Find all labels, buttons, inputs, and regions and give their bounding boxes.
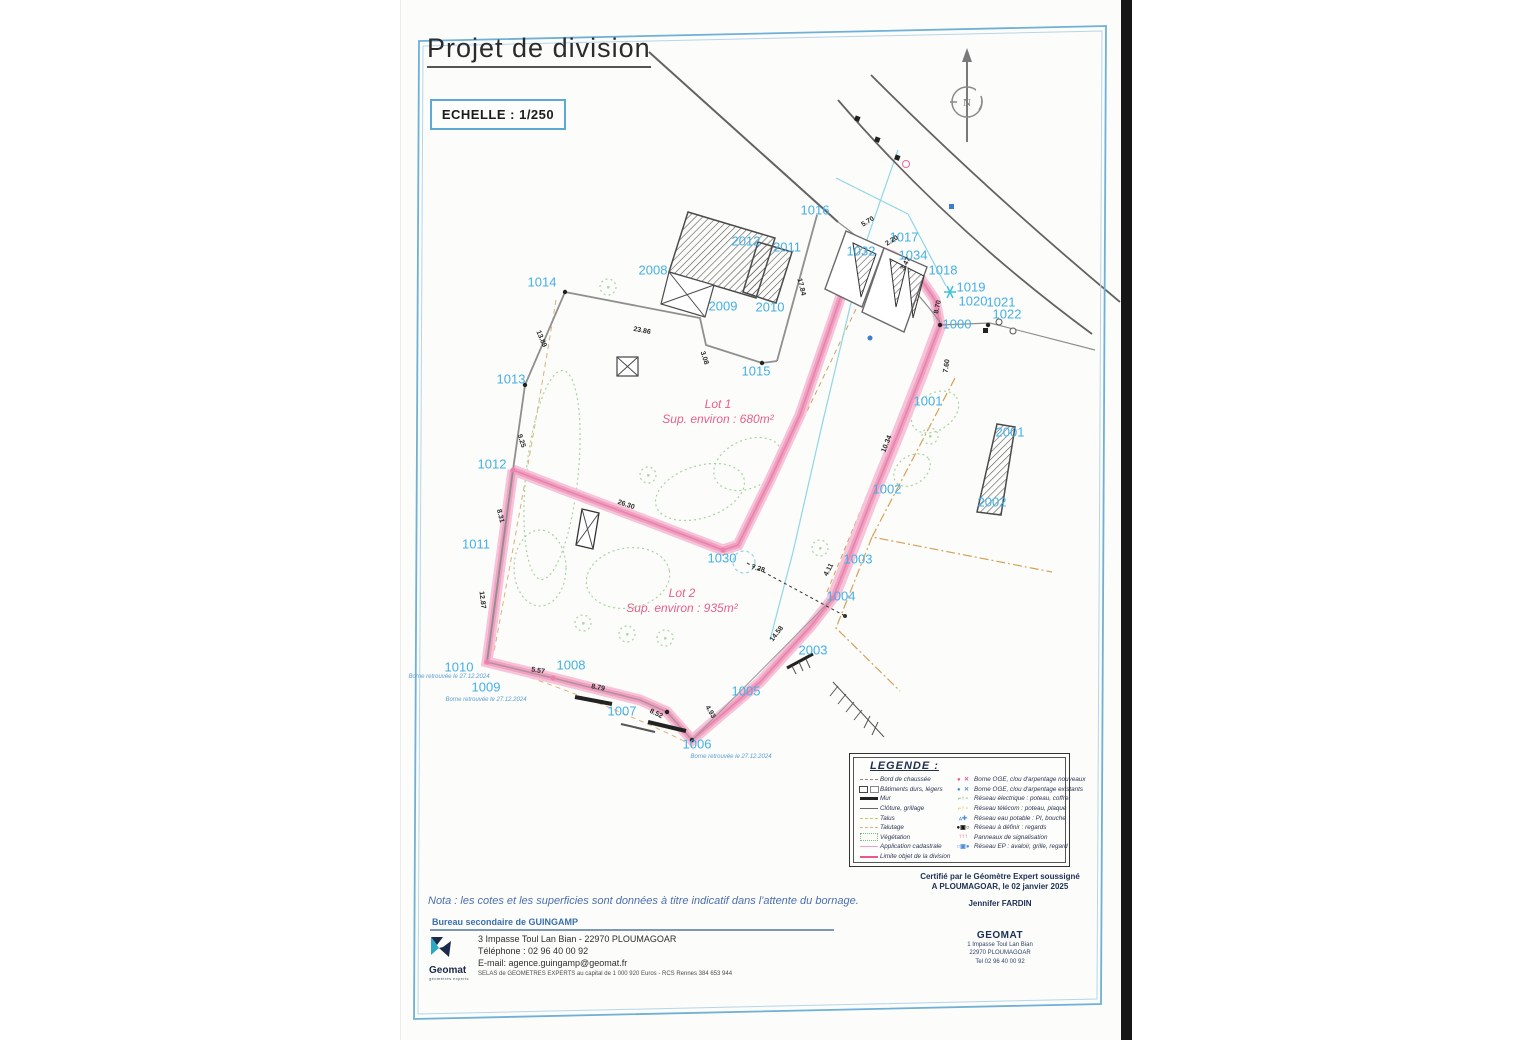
legend-column-right: ● ✕Borne OGE, clou d'arpentage nouveaux●… — [952, 775, 1064, 861]
agency-phone: Téléphone : 02 96 40 00 92 — [478, 945, 676, 957]
parcel-label-1006: 1006 — [683, 737, 712, 752]
measurement-label: 7.28 — [750, 564, 765, 575]
scanned-division-plan: N 10001001100210031004100510061007100810… — [0, 0, 1520, 1040]
parcel-label-1013: 1013 — [497, 372, 526, 387]
division-icon — [858, 856, 880, 858]
legend-item-label: Borne OGE, clou d'arpentage nouveaux — [974, 776, 1085, 783]
measurement-label: 4.93 — [704, 704, 717, 719]
legend-item: ○▣●Réseau EP : avaloir, grille, regard — [952, 842, 1064, 852]
ep-icon: ○▣● — [952, 843, 974, 850]
parcel-label-1001: 1001 — [914, 394, 943, 409]
legend-item-label: Panneaux de signalisation — [974, 834, 1048, 841]
parcel-label-2008: 2008 — [639, 263, 668, 278]
telecom-icon: ⌐↑ ▫ — [952, 806, 974, 812]
parcel-label-1009: 1009 — [472, 680, 501, 695]
certification-block: Certifié par le Géomètre Expert soussign… — [905, 872, 1095, 966]
legend-item: ↑↑↑Panneaux de signalisation — [952, 833, 1064, 843]
scan-edge-strip — [1121, 0, 1132, 1040]
eau-icon: ▵✚ — [952, 815, 974, 822]
legend-item: ●▣○Réseau à définir : regards — [952, 823, 1064, 833]
legend-item: Talus — [858, 813, 952, 823]
parcel-label-1032: 1032 — [847, 244, 876, 259]
nota-text: Nota : les cotes et les superficies sont… — [428, 895, 859, 907]
talutage-icon — [858, 827, 880, 828]
measurement-label: 8.31 — [495, 509, 505, 524]
cert-addr1: 1 Impasse Toul Lan Bian — [905, 941, 1095, 949]
measurement-label: 10.34 — [880, 435, 893, 454]
geomat-logo-icon — [429, 935, 459, 959]
legend-title: LEGENDE : — [870, 760, 1069, 772]
elec-icon: ⌐↑ ▫ — [952, 796, 974, 802]
geomat-logo-sub: géomètres experts — [429, 976, 473, 981]
parcel-label-1012: 1012 — [478, 457, 507, 472]
borne-note: Borne retrouvée le 27.12.2024 — [408, 674, 489, 680]
legend-item-label: Talutage — [880, 824, 904, 831]
legend-column-left: Bord de chausséeBâtiments durs, légersMu… — [858, 775, 952, 861]
scale-label: ECHELLE : 1/250 — [442, 107, 554, 122]
legend-item: Végétation — [858, 833, 952, 843]
borne-note: Borne retrouvée le 27.12.2024 — [690, 754, 771, 760]
parcel-label-2002: 2002 — [978, 495, 1007, 510]
parcel-label-2003: 2003 — [799, 643, 828, 658]
cert-addr3: Tel 02 96 40 00 92 — [905, 958, 1095, 966]
parcel-label-1011: 1011 — [462, 537, 490, 552]
legend-item-label: Limite objet de la division — [880, 853, 950, 860]
cert-company: GEOMAT — [905, 930, 1095, 941]
borne-old-icon: ● ✕ — [952, 786, 974, 793]
measurement-label: 4.11 — [823, 563, 835, 578]
legend-item: ⌐↑ ▫Réseau télécom : poteau, plaque — [952, 804, 1064, 814]
page-title: Projet de division — [427, 33, 651, 68]
legend-box: LEGENDE : Bord de chausséeBâtiments durs… — [849, 753, 1070, 867]
parcel-label-1022: 1022 — [993, 307, 1022, 322]
lot-label: Lot 1Sup. environ : 680m² — [662, 397, 773, 427]
cert-line2: A PLOUMAGOAR, le 02 janvier 2025 — [905, 882, 1095, 892]
borne-note: Borne retrouvée le 27.12.2024 — [445, 697, 526, 703]
scale-box: ECHELLE : 1/250 — [430, 99, 566, 130]
measurement-label: 12.87 — [477, 591, 486, 609]
legend-item-label: Végétation — [880, 834, 910, 841]
parcel-label-1008: 1008 — [557, 658, 586, 673]
measurement-label: 17.84 — [795, 278, 806, 297]
legend-item: ⌐↑ ▫Réseau électrique : poteau, coffret — [952, 794, 1064, 804]
parcel-label-2010: 2010 — [756, 300, 785, 315]
legend-item-label: Borne OGE, clou d'arpentage existants — [974, 786, 1083, 793]
legend-item-label: Mur — [880, 795, 891, 802]
plan-labels-layer: 1000100110021003100410051006100710081009… — [0, 0, 1520, 1040]
measurement-label: 8.70 — [933, 300, 943, 315]
legal-line: SELAS de GEOMETRES EXPERTS au capital de… — [478, 971, 732, 977]
parcel-label-2009: 2009 — [709, 299, 738, 314]
buildings-icon — [858, 786, 880, 793]
measurement-label: 8.52 — [648, 708, 663, 720]
legend-item: Bord de chaussée — [858, 775, 952, 785]
measurement-label: 13.89 — [534, 330, 547, 349]
legend-item: Talutage — [858, 823, 952, 833]
measurement-label: 2.20 — [884, 234, 899, 247]
geomat-logo-name: Geomat — [429, 965, 473, 976]
measurement-label: 9.25 — [516, 433, 527, 448]
legend-item: ● ✕Borne OGE, clou d'arpentage nouveaux — [952, 775, 1064, 785]
measurement-label: 8.79 — [591, 683, 606, 692]
legend-item-label: Talus — [880, 815, 895, 822]
legend-item: Mur — [858, 794, 952, 804]
cert-signer: Jennifer FARDIN — [905, 899, 1095, 908]
legend-item-label: Réseau télécom : poteau, plaque — [974, 805, 1066, 812]
parcel-label-2012: 2012 — [732, 234, 761, 249]
measurement-label: 5.57 — [531, 666, 546, 675]
legend-item-label: Réseau à définir : regards — [974, 824, 1046, 831]
measurement-label: 5.70 — [860, 215, 875, 228]
road-edge-icon — [858, 779, 880, 780]
legend-item: Limite objet de la division — [858, 852, 952, 862]
parcel-label-1018: 1018 — [929, 263, 958, 278]
measurement-label: 3.08 — [699, 350, 710, 365]
parcel-label-1000: 1000 — [943, 317, 972, 332]
cert-line1: Certifié par le Géomètre Expert soussign… — [905, 872, 1095, 882]
talus-icon — [858, 818, 880, 819]
parcel-label-1005: 1005 — [732, 684, 761, 699]
parcel-label-1015: 1015 — [742, 364, 771, 379]
agency-address: 3 Impasse Toul Lan Bian - 22970 PLOUMAGO… — [478, 933, 676, 969]
parcel-label-1002: 1002 — [873, 482, 902, 497]
agency-email: E-mail: agence.guingamp@geomat.fr — [478, 957, 676, 969]
bureau-underline — [430, 929, 834, 931]
cadastral-icon — [858, 846, 880, 847]
measurement-label: 14.58 — [769, 625, 785, 643]
wall-icon — [858, 797, 880, 800]
parcel-label-1004: 1004 — [827, 589, 856, 604]
legend-item: Clôture, grillage — [858, 804, 952, 814]
parcel-label-1016: 1016 — [801, 203, 830, 218]
parcel-label-2001: 2001 — [996, 425, 1025, 440]
panneaux-icon: ↑↑↑ — [952, 834, 974, 840]
legend-item: Application cadastrale — [858, 842, 952, 852]
legend-item-label: Réseau eau potable : PI, bouche — [974, 815, 1066, 822]
bureau-label: Bureau secondaire de GUINGAMP — [432, 917, 578, 927]
parcel-label-1019: 1019 — [957, 280, 986, 295]
agency-street: 3 Impasse Toul Lan Bian - 22970 PLOUMAGO… — [478, 933, 676, 945]
parcel-label-2011: 2011 — [773, 240, 801, 255]
regards-icon: ●▣○ — [952, 824, 974, 831]
legend-item-label: Bord de chaussée — [880, 776, 931, 783]
cert-addr2: 22970 PLOUMAGOAR — [905, 949, 1095, 957]
legend-item: Bâtiments durs, légers — [858, 785, 952, 795]
parcel-label-1020: 1020 — [959, 294, 988, 309]
parcel-label-1010: 1010 — [445, 660, 474, 675]
parcel-label-1030: 1030 — [708, 551, 737, 566]
measurement-label: 23.86 — [633, 326, 652, 336]
legend-item-label: Application cadastrale — [880, 843, 942, 850]
legend-item-label: Bâtiments durs, légers — [880, 786, 943, 793]
fence-icon — [858, 808, 880, 809]
legend-item: ● ✕Borne OGE, clou d'arpentage existants — [952, 785, 1064, 795]
parcel-label-1014: 1014 — [528, 275, 557, 290]
borne-new-icon: ● ✕ — [952, 776, 974, 783]
lot-label: Lot 2Sup. environ : 935m² — [626, 586, 737, 616]
measurement-label: 26.30 — [617, 499, 636, 511]
geomat-logo: Geomat géomètres experts — [429, 935, 473, 981]
measurement-label: 7.60 — [943, 359, 952, 373]
parcel-label-1007: 1007 — [608, 704, 637, 719]
legend-item: ▵✚Réseau eau potable : PI, bouche — [952, 813, 1064, 823]
legend-item-label: Réseau électrique : poteau, coffret — [974, 795, 1070, 802]
legend-item-label: Réseau EP : avaloir, grille, regard — [974, 843, 1068, 850]
parcel-label-1003: 1003 — [844, 552, 873, 567]
vegetation-icon — [858, 833, 880, 841]
legend-item-label: Clôture, grillage — [880, 805, 924, 812]
